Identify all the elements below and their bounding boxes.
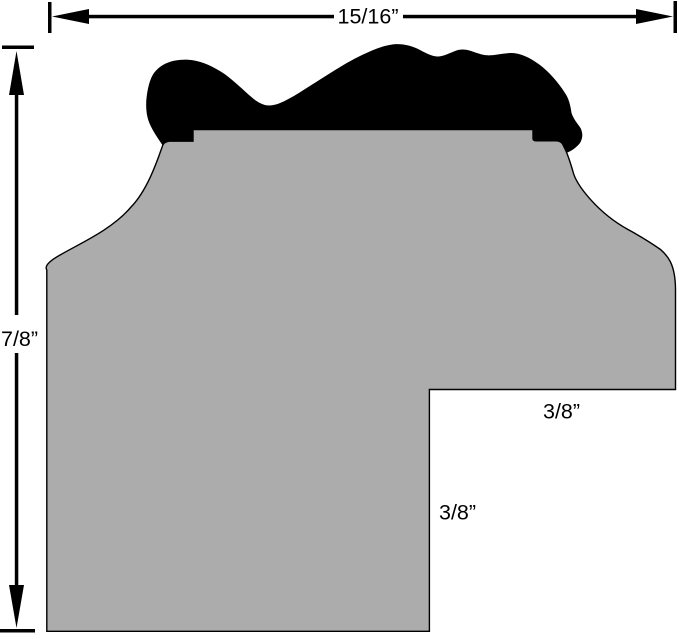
- svg-text:15/16”: 15/16”: [338, 5, 399, 29]
- svg-text:3/8”: 3/8”: [543, 400, 580, 424]
- svg-text:7/8”: 7/8”: [1, 327, 38, 351]
- svg-text:3/8”: 3/8”: [439, 501, 476, 525]
